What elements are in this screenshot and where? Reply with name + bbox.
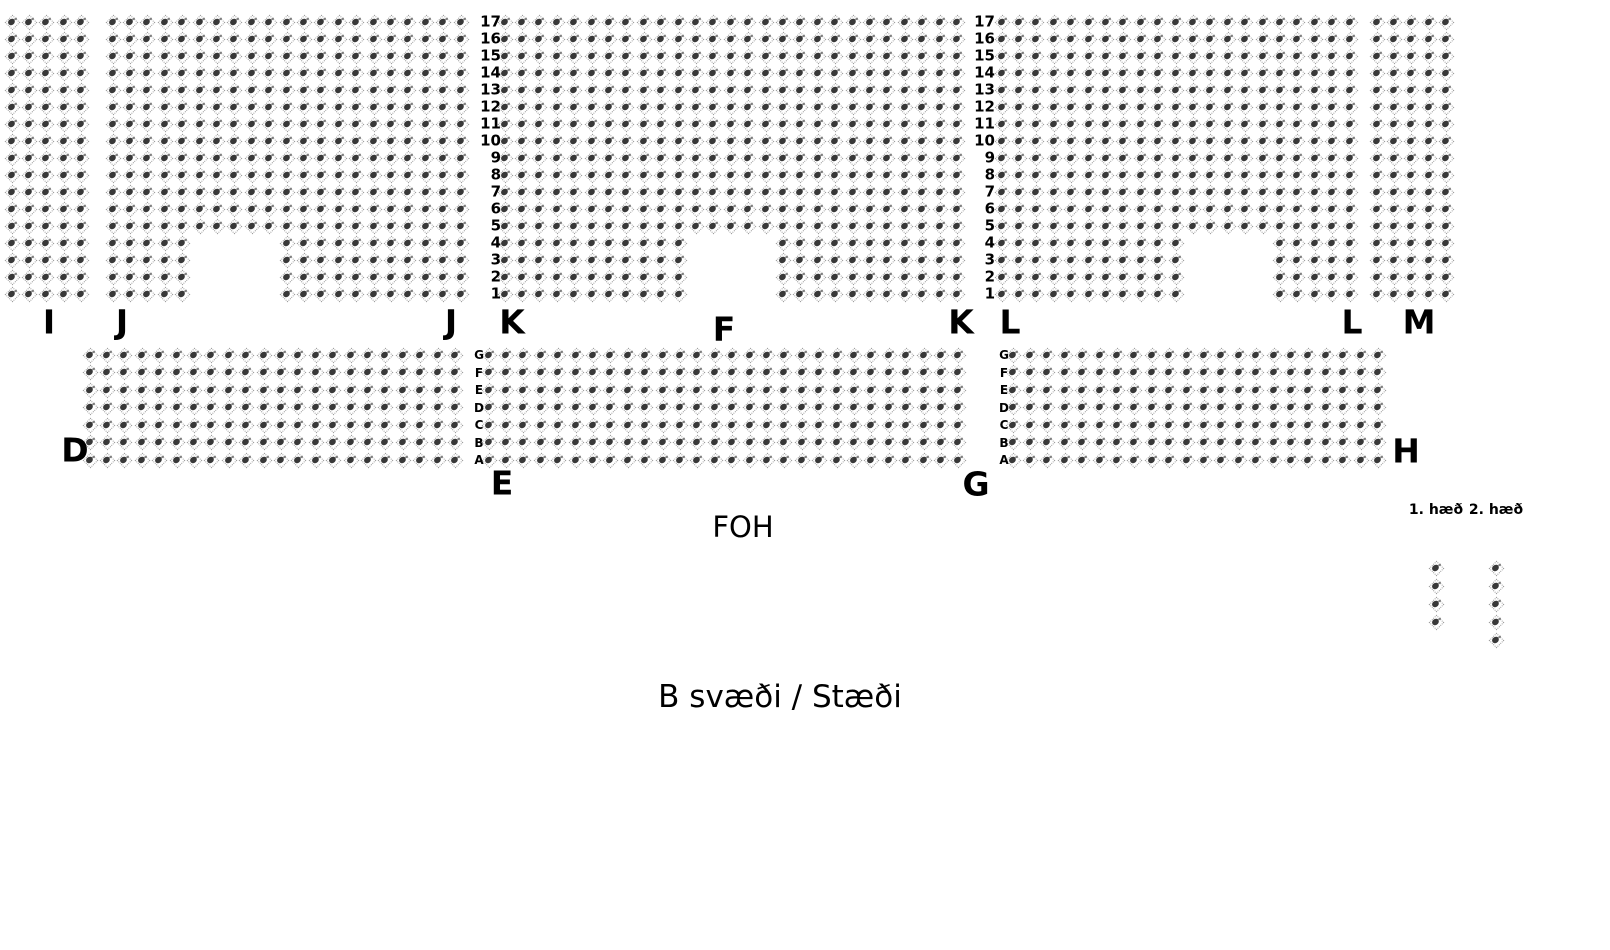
seat-icon[interactable] bbox=[551, 152, 564, 165]
seat-icon[interactable] bbox=[568, 220, 581, 233]
seat-icon[interactable] bbox=[1291, 288, 1304, 301]
seat-icon[interactable] bbox=[707, 186, 720, 199]
seat-icon[interactable] bbox=[1388, 84, 1401, 97]
seat-icon[interactable] bbox=[368, 33, 381, 46]
seat-icon[interactable] bbox=[744, 366, 757, 379]
seat-icon[interactable] bbox=[812, 186, 825, 199]
seat-icon[interactable] bbox=[1065, 237, 1078, 250]
seat-icon[interactable] bbox=[673, 203, 686, 216]
seat-icon[interactable] bbox=[1170, 135, 1183, 148]
seat-icon[interactable] bbox=[228, 152, 241, 165]
seat-icon[interactable] bbox=[761, 454, 774, 467]
seat-icon[interactable] bbox=[744, 384, 757, 397]
seat-icon[interactable] bbox=[726, 419, 739, 432]
seat-icon[interactable] bbox=[865, 454, 878, 467]
seat-icon[interactable] bbox=[402, 203, 415, 216]
seat-icon[interactable] bbox=[533, 203, 546, 216]
seat-icon[interactable] bbox=[1320, 349, 1333, 362]
seat-icon[interactable] bbox=[813, 384, 826, 397]
seat-icon[interactable] bbox=[812, 203, 825, 216]
seat-icon[interactable] bbox=[420, 254, 433, 267]
seat-icon[interactable] bbox=[437, 67, 450, 80]
seat-icon[interactable] bbox=[1030, 101, 1043, 114]
seat-icon[interactable] bbox=[402, 101, 415, 114]
seat-icon[interactable] bbox=[141, 220, 154, 233]
seat-icon[interactable] bbox=[673, 237, 686, 250]
seat-icon[interactable] bbox=[586, 50, 599, 63]
seat-icon[interactable] bbox=[1388, 203, 1401, 216]
seat-icon[interactable] bbox=[124, 33, 137, 46]
seat-icon[interactable] bbox=[141, 254, 154, 267]
seat-icon[interactable] bbox=[533, 271, 546, 284]
seat-icon[interactable] bbox=[345, 436, 358, 449]
seat-icon[interactable] bbox=[1268, 384, 1281, 397]
seat-icon[interactable] bbox=[1371, 254, 1384, 267]
seat-icon[interactable] bbox=[881, 186, 894, 199]
seat-icon[interactable] bbox=[40, 203, 53, 216]
seat-icon[interactable] bbox=[829, 84, 842, 97]
seat-icon[interactable] bbox=[298, 16, 311, 29]
seat-icon[interactable] bbox=[673, 169, 686, 182]
seat-icon[interactable] bbox=[916, 186, 929, 199]
seat-icon[interactable] bbox=[655, 152, 668, 165]
seat-icon[interactable] bbox=[551, 237, 564, 250]
seat-icon[interactable] bbox=[1405, 237, 1418, 250]
seat-icon[interactable] bbox=[761, 419, 774, 432]
seat-icon[interactable] bbox=[952, 401, 965, 414]
seat-icon[interactable] bbox=[691, 349, 704, 362]
seat-icon[interactable] bbox=[58, 50, 71, 63]
seat-icon[interactable] bbox=[246, 203, 259, 216]
seat-icon[interactable] bbox=[6, 186, 19, 199]
seat-icon[interactable] bbox=[333, 33, 346, 46]
seat-icon[interactable] bbox=[1405, 16, 1418, 29]
seat-icon[interactable] bbox=[500, 349, 513, 362]
seat-icon[interactable] bbox=[864, 101, 877, 114]
seat-icon[interactable] bbox=[638, 67, 651, 80]
seat-icon[interactable] bbox=[760, 135, 773, 148]
seat-icon[interactable] bbox=[603, 271, 616, 284]
seat-icon[interactable] bbox=[1030, 186, 1043, 199]
seat-icon[interactable] bbox=[934, 135, 947, 148]
seat-icon[interactable] bbox=[402, 50, 415, 63]
seat-icon[interactable] bbox=[420, 50, 433, 63]
seat-icon[interactable] bbox=[586, 16, 599, 29]
seat-icon[interactable] bbox=[437, 169, 450, 182]
seat-icon[interactable] bbox=[58, 254, 71, 267]
seat-icon[interactable] bbox=[777, 84, 790, 97]
seat-icon[interactable] bbox=[194, 101, 207, 114]
seat-icon[interactable] bbox=[1355, 349, 1368, 362]
seat-icon[interactable] bbox=[934, 288, 947, 301]
seat-icon[interactable] bbox=[281, 50, 294, 63]
seat-icon[interactable] bbox=[75, 220, 88, 233]
seat-icon[interactable] bbox=[75, 101, 88, 114]
seat-icon[interactable] bbox=[1274, 33, 1287, 46]
seat-icon[interactable] bbox=[1440, 84, 1453, 97]
seat-icon[interactable] bbox=[847, 220, 860, 233]
seat-icon[interactable] bbox=[368, 186, 381, 199]
seat-icon[interactable] bbox=[118, 349, 131, 362]
seat-icon[interactable] bbox=[327, 349, 340, 362]
seat-icon[interactable] bbox=[414, 419, 427, 432]
seat-icon[interactable] bbox=[449, 419, 462, 432]
seat-icon[interactable] bbox=[603, 237, 616, 250]
seat-icon[interactable] bbox=[432, 349, 445, 362]
seat-icon[interactable] bbox=[176, 50, 189, 63]
seat-icon[interactable] bbox=[674, 349, 687, 362]
seat-icon[interactable] bbox=[1204, 169, 1217, 182]
seat-icon[interactable] bbox=[1059, 384, 1072, 397]
seat-icon[interactable] bbox=[1337, 436, 1350, 449]
seat-icon[interactable] bbox=[298, 271, 311, 284]
seat-icon[interactable] bbox=[996, 67, 1009, 80]
seat-icon[interactable] bbox=[350, 135, 363, 148]
seat-icon[interactable] bbox=[101, 454, 114, 467]
seat-icon[interactable] bbox=[1309, 203, 1322, 216]
seat-icon[interactable] bbox=[777, 169, 790, 182]
seat-icon[interactable] bbox=[402, 84, 415, 97]
seat-icon[interactable] bbox=[864, 67, 877, 80]
seat-icon[interactable] bbox=[604, 419, 617, 432]
seat-icon[interactable] bbox=[881, 118, 894, 131]
seat-icon[interactable] bbox=[760, 152, 773, 165]
seat-icon[interactable] bbox=[603, 220, 616, 233]
seat-icon[interactable] bbox=[281, 254, 294, 267]
seat-icon[interactable] bbox=[812, 84, 825, 97]
seat-icon[interactable] bbox=[107, 135, 120, 148]
seat-icon[interactable] bbox=[620, 67, 633, 80]
seat-icon[interactable] bbox=[1440, 254, 1453, 267]
seat-icon[interactable] bbox=[40, 169, 53, 182]
seat-icon[interactable] bbox=[934, 67, 947, 80]
seat-icon[interactable] bbox=[638, 118, 651, 131]
seat-icon[interactable] bbox=[455, 237, 468, 250]
seat-icon[interactable] bbox=[1257, 101, 1270, 114]
seat-icon[interactable] bbox=[1013, 16, 1026, 29]
seat-icon[interactable] bbox=[1198, 366, 1211, 379]
seat-icon[interactable] bbox=[1405, 254, 1418, 267]
seat-icon[interactable] bbox=[107, 16, 120, 29]
seat-icon[interactable] bbox=[449, 436, 462, 449]
seat-icon[interactable] bbox=[603, 152, 616, 165]
seat-icon[interactable] bbox=[587, 401, 600, 414]
seat-icon[interactable] bbox=[831, 436, 844, 449]
seat-icon[interactable] bbox=[620, 16, 633, 29]
seat-icon[interactable] bbox=[935, 401, 948, 414]
seat-icon[interactable] bbox=[223, 366, 236, 379]
seat-icon[interactable] bbox=[437, 33, 450, 46]
seat-icon[interactable] bbox=[58, 288, 71, 301]
seat-icon[interactable] bbox=[673, 220, 686, 233]
seat-icon[interactable] bbox=[153, 419, 166, 432]
seat-icon[interactable] bbox=[107, 237, 120, 250]
seat-icon[interactable] bbox=[1030, 220, 1043, 233]
seat-icon[interactable] bbox=[777, 33, 790, 46]
seat-icon[interactable] bbox=[620, 271, 633, 284]
seat-icon[interactable] bbox=[75, 203, 88, 216]
seat-icon[interactable] bbox=[298, 152, 311, 165]
seat-icon[interactable] bbox=[934, 220, 947, 233]
seat-icon[interactable] bbox=[385, 84, 398, 97]
seat-icon[interactable] bbox=[1030, 237, 1043, 250]
seat-icon[interactable] bbox=[350, 50, 363, 63]
seat-icon[interactable] bbox=[1100, 254, 1113, 267]
seat-icon[interactable] bbox=[40, 254, 53, 267]
seat-icon[interactable] bbox=[516, 101, 529, 114]
seat-icon[interactable] bbox=[1430, 562, 1443, 575]
seat-icon[interactable] bbox=[1024, 349, 1037, 362]
seat-icon[interactable] bbox=[899, 50, 912, 63]
seat-icon[interactable] bbox=[1013, 186, 1026, 199]
seat-icon[interactable] bbox=[1065, 118, 1078, 131]
seat-icon[interactable] bbox=[533, 288, 546, 301]
seat-icon[interactable] bbox=[1163, 384, 1176, 397]
seat-icon[interactable] bbox=[124, 16, 137, 29]
seat-icon[interactable] bbox=[298, 186, 311, 199]
seat-icon[interactable] bbox=[1163, 401, 1176, 414]
seat-icon[interactable] bbox=[6, 203, 19, 216]
seat-icon[interactable] bbox=[1204, 101, 1217, 114]
seat-icon[interactable] bbox=[1372, 419, 1385, 432]
seat-icon[interactable] bbox=[813, 454, 826, 467]
seat-icon[interactable] bbox=[437, 203, 450, 216]
seat-icon[interactable] bbox=[778, 454, 791, 467]
seat-icon[interactable] bbox=[744, 349, 757, 362]
seat-icon[interactable] bbox=[333, 50, 346, 63]
seat-icon[interactable] bbox=[568, 67, 581, 80]
seat-icon[interactable] bbox=[1170, 84, 1183, 97]
seat-icon[interactable] bbox=[899, 84, 912, 97]
seat-icon[interactable] bbox=[1440, 169, 1453, 182]
seat-icon[interactable] bbox=[194, 67, 207, 80]
seat-icon[interactable] bbox=[709, 454, 722, 467]
seat-icon[interactable] bbox=[315, 101, 328, 114]
seat-icon[interactable] bbox=[345, 384, 358, 397]
seat-icon[interactable] bbox=[1128, 436, 1141, 449]
seat-icon[interactable] bbox=[1111, 419, 1124, 432]
seat-icon[interactable] bbox=[420, 16, 433, 29]
seat-icon[interactable] bbox=[674, 436, 687, 449]
seat-icon[interactable] bbox=[1146, 454, 1159, 467]
seat-icon[interactable] bbox=[1013, 135, 1026, 148]
seat-icon[interactable] bbox=[75, 135, 88, 148]
seat-icon[interactable] bbox=[1430, 598, 1443, 611]
seat-icon[interactable] bbox=[673, 50, 686, 63]
seat-icon[interactable] bbox=[385, 271, 398, 284]
seat-icon[interactable] bbox=[188, 384, 201, 397]
seat-icon[interactable] bbox=[777, 271, 790, 284]
seat-icon[interactable] bbox=[516, 186, 529, 199]
seat-icon[interactable] bbox=[315, 186, 328, 199]
seat-icon[interactable] bbox=[385, 220, 398, 233]
seat-icon[interactable] bbox=[533, 118, 546, 131]
seat-icon[interactable] bbox=[673, 254, 686, 267]
seat-icon[interactable] bbox=[881, 135, 894, 148]
seat-icon[interactable] bbox=[899, 135, 912, 148]
seat-icon[interactable] bbox=[1423, 203, 1436, 216]
seat-icon[interactable] bbox=[1355, 436, 1368, 449]
seat-icon[interactable] bbox=[124, 203, 137, 216]
seat-icon[interactable] bbox=[107, 271, 120, 284]
seat-icon[interactable] bbox=[778, 419, 791, 432]
seat-icon[interactable] bbox=[420, 220, 433, 233]
seat-icon[interactable] bbox=[1076, 349, 1089, 362]
seat-icon[interactable] bbox=[638, 271, 651, 284]
seat-icon[interactable] bbox=[327, 366, 340, 379]
seat-icon[interactable] bbox=[1083, 220, 1096, 233]
seat-icon[interactable] bbox=[1083, 271, 1096, 284]
seat-icon[interactable] bbox=[657, 349, 670, 362]
seat-icon[interactable] bbox=[829, 237, 842, 250]
seat-icon[interactable] bbox=[900, 419, 913, 432]
seat-icon[interactable] bbox=[760, 169, 773, 182]
seat-icon[interactable] bbox=[240, 454, 253, 467]
seat-icon[interactable] bbox=[535, 436, 548, 449]
seat-icon[interactable] bbox=[1128, 384, 1141, 397]
seat-icon[interactable] bbox=[916, 220, 929, 233]
seat-icon[interactable] bbox=[1198, 419, 1211, 432]
seat-icon[interactable] bbox=[455, 84, 468, 97]
seat-icon[interactable] bbox=[223, 384, 236, 397]
seat-icon[interactable] bbox=[420, 186, 433, 199]
seat-icon[interactable] bbox=[1388, 186, 1401, 199]
seat-icon[interactable] bbox=[533, 237, 546, 250]
seat-icon[interactable] bbox=[829, 101, 842, 114]
seat-icon[interactable] bbox=[23, 16, 36, 29]
seat-icon[interactable] bbox=[437, 152, 450, 165]
seat-icon[interactable] bbox=[228, 16, 241, 29]
seat-icon[interactable] bbox=[58, 237, 71, 250]
seat-icon[interactable] bbox=[552, 401, 565, 414]
seat-icon[interactable] bbox=[159, 152, 172, 165]
seat-icon[interactable] bbox=[281, 84, 294, 97]
seat-icon[interactable] bbox=[1117, 33, 1130, 46]
seat-icon[interactable] bbox=[228, 186, 241, 199]
seat-icon[interactable] bbox=[385, 288, 398, 301]
seat-icon[interactable] bbox=[1170, 50, 1183, 63]
seat-icon[interactable] bbox=[58, 186, 71, 199]
seat-icon[interactable] bbox=[864, 254, 877, 267]
seat-icon[interactable] bbox=[586, 135, 599, 148]
seat-icon[interactable] bbox=[1291, 101, 1304, 114]
seat-icon[interactable] bbox=[1065, 271, 1078, 284]
seat-icon[interactable] bbox=[742, 101, 755, 114]
seat-icon[interactable] bbox=[1135, 16, 1148, 29]
seat-icon[interactable] bbox=[655, 84, 668, 97]
seat-icon[interactable] bbox=[794, 169, 807, 182]
seat-icon[interactable] bbox=[194, 152, 207, 165]
seat-icon[interactable] bbox=[188, 401, 201, 414]
seat-icon[interactable] bbox=[620, 50, 633, 63]
seat-icon[interactable] bbox=[1274, 84, 1287, 97]
seat-icon[interactable] bbox=[205, 384, 218, 397]
seat-icon[interactable] bbox=[533, 169, 546, 182]
seat-icon[interactable] bbox=[1388, 169, 1401, 182]
seat-icon[interactable] bbox=[1030, 271, 1043, 284]
seat-icon[interactable] bbox=[124, 169, 137, 182]
seat-icon[interactable] bbox=[899, 118, 912, 131]
seat-icon[interactable] bbox=[918, 436, 931, 449]
seat-icon[interactable] bbox=[432, 384, 445, 397]
seat-icon[interactable] bbox=[1355, 384, 1368, 397]
seat-icon[interactable] bbox=[101, 401, 114, 414]
seat-icon[interactable] bbox=[620, 84, 633, 97]
seat-icon[interactable] bbox=[761, 366, 774, 379]
seat-icon[interactable] bbox=[848, 419, 861, 432]
seat-icon[interactable] bbox=[673, 67, 686, 80]
seat-icon[interactable] bbox=[258, 384, 271, 397]
seat-icon[interactable] bbox=[760, 118, 773, 131]
seat-icon[interactable] bbox=[75, 152, 88, 165]
seat-icon[interactable] bbox=[118, 384, 131, 397]
seat-icon[interactable] bbox=[847, 84, 860, 97]
seat-icon[interactable] bbox=[315, 135, 328, 148]
seat-icon[interactable] bbox=[1405, 152, 1418, 165]
seat-icon[interactable] bbox=[1268, 401, 1281, 414]
seat-icon[interactable] bbox=[1117, 203, 1130, 216]
seat-icon[interactable] bbox=[483, 436, 496, 449]
seat-icon[interactable] bbox=[552, 419, 565, 432]
seat-icon[interactable] bbox=[533, 101, 546, 114]
seat-icon[interactable] bbox=[1233, 366, 1246, 379]
seat-icon[interactable] bbox=[673, 84, 686, 97]
seat-icon[interactable] bbox=[847, 169, 860, 182]
seat-icon[interactable] bbox=[725, 16, 738, 29]
seat-icon[interactable] bbox=[847, 50, 860, 63]
seat-icon[interactable] bbox=[848, 349, 861, 362]
seat-icon[interactable] bbox=[638, 101, 651, 114]
seat-icon[interactable] bbox=[6, 50, 19, 63]
seat-icon[interactable] bbox=[638, 33, 651, 46]
seat-icon[interactable] bbox=[847, 16, 860, 29]
seat-icon[interactable] bbox=[533, 84, 546, 97]
seat-icon[interactable] bbox=[1239, 220, 1252, 233]
seat-icon[interactable] bbox=[298, 101, 311, 114]
seat-icon[interactable] bbox=[420, 67, 433, 80]
seat-icon[interactable] bbox=[865, 384, 878, 397]
seat-icon[interactable] bbox=[194, 33, 207, 46]
seat-icon[interactable] bbox=[1423, 67, 1436, 80]
seat-icon[interactable] bbox=[1198, 454, 1211, 467]
seat-icon[interactable] bbox=[899, 288, 912, 301]
seat-icon[interactable] bbox=[934, 50, 947, 63]
seat-icon[interactable] bbox=[483, 349, 496, 362]
seat-icon[interactable] bbox=[603, 67, 616, 80]
seat-icon[interactable] bbox=[1274, 169, 1287, 182]
seat-icon[interactable] bbox=[1065, 186, 1078, 199]
seat-icon[interactable] bbox=[188, 454, 201, 467]
seat-icon[interactable] bbox=[1013, 169, 1026, 182]
seat-icon[interactable] bbox=[362, 419, 375, 432]
seat-icon[interactable] bbox=[655, 186, 668, 199]
seat-icon[interactable] bbox=[1239, 118, 1252, 131]
seat-icon[interactable] bbox=[1013, 50, 1026, 63]
seat-icon[interactable] bbox=[899, 16, 912, 29]
seat-icon[interactable] bbox=[1372, 366, 1385, 379]
seat-icon[interactable] bbox=[228, 118, 241, 131]
seat-icon[interactable] bbox=[345, 401, 358, 414]
seat-icon[interactable] bbox=[657, 436, 670, 449]
seat-icon[interactable] bbox=[310, 401, 323, 414]
seat-icon[interactable] bbox=[455, 152, 468, 165]
seat-icon[interactable] bbox=[437, 101, 450, 114]
seat-icon[interactable] bbox=[124, 220, 137, 233]
seat-icon[interactable] bbox=[813, 436, 826, 449]
seat-icon[interactable] bbox=[455, 33, 468, 46]
seat-icon[interactable] bbox=[298, 135, 311, 148]
seat-icon[interactable] bbox=[1170, 33, 1183, 46]
